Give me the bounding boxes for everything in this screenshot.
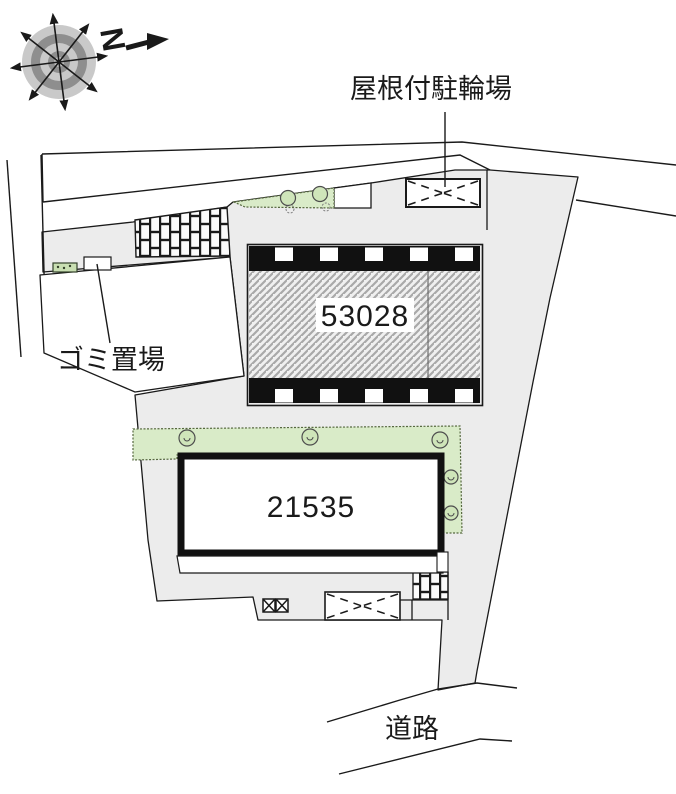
building-53028: 53028 <box>248 245 483 406</box>
white-notch <box>334 183 371 208</box>
top-road-outer-line <box>42 142 676 165</box>
tree-icon <box>302 429 318 445</box>
label-garbage: ゴミ置場 <box>57 345 165 375</box>
tree-icon <box>281 191 296 206</box>
tree-icon <box>444 470 458 484</box>
tree-icon <box>444 506 458 520</box>
tree-icon <box>179 430 195 446</box>
right-branch-line <box>576 200 676 216</box>
label-road: 道路 <box>385 714 439 744</box>
tree-icon <box>313 187 328 202</box>
crossed-boxes <box>263 599 288 612</box>
bicycle-parking-bottom <box>325 592 400 620</box>
bottom-road-lower-line <box>339 739 512 774</box>
brick-paving-small <box>413 572 448 599</box>
compass-rose: N <box>12 15 169 109</box>
bicycle-parking-top <box>406 179 480 207</box>
walkway-strip <box>177 556 443 573</box>
building-53028-number: 53028 <box>321 300 409 333</box>
tree-icon <box>432 432 448 448</box>
site-plan: 53028 21535 <box>0 0 676 794</box>
step-box <box>437 552 448 572</box>
brick-paving-strip <box>135 207 230 257</box>
label-bicycle-parking: 屋根付駐輪場 <box>350 74 512 104</box>
building-21535-number: 21535 <box>267 491 355 524</box>
building-21535: 21535 <box>181 456 441 553</box>
left-road-outer-line <box>7 160 21 357</box>
